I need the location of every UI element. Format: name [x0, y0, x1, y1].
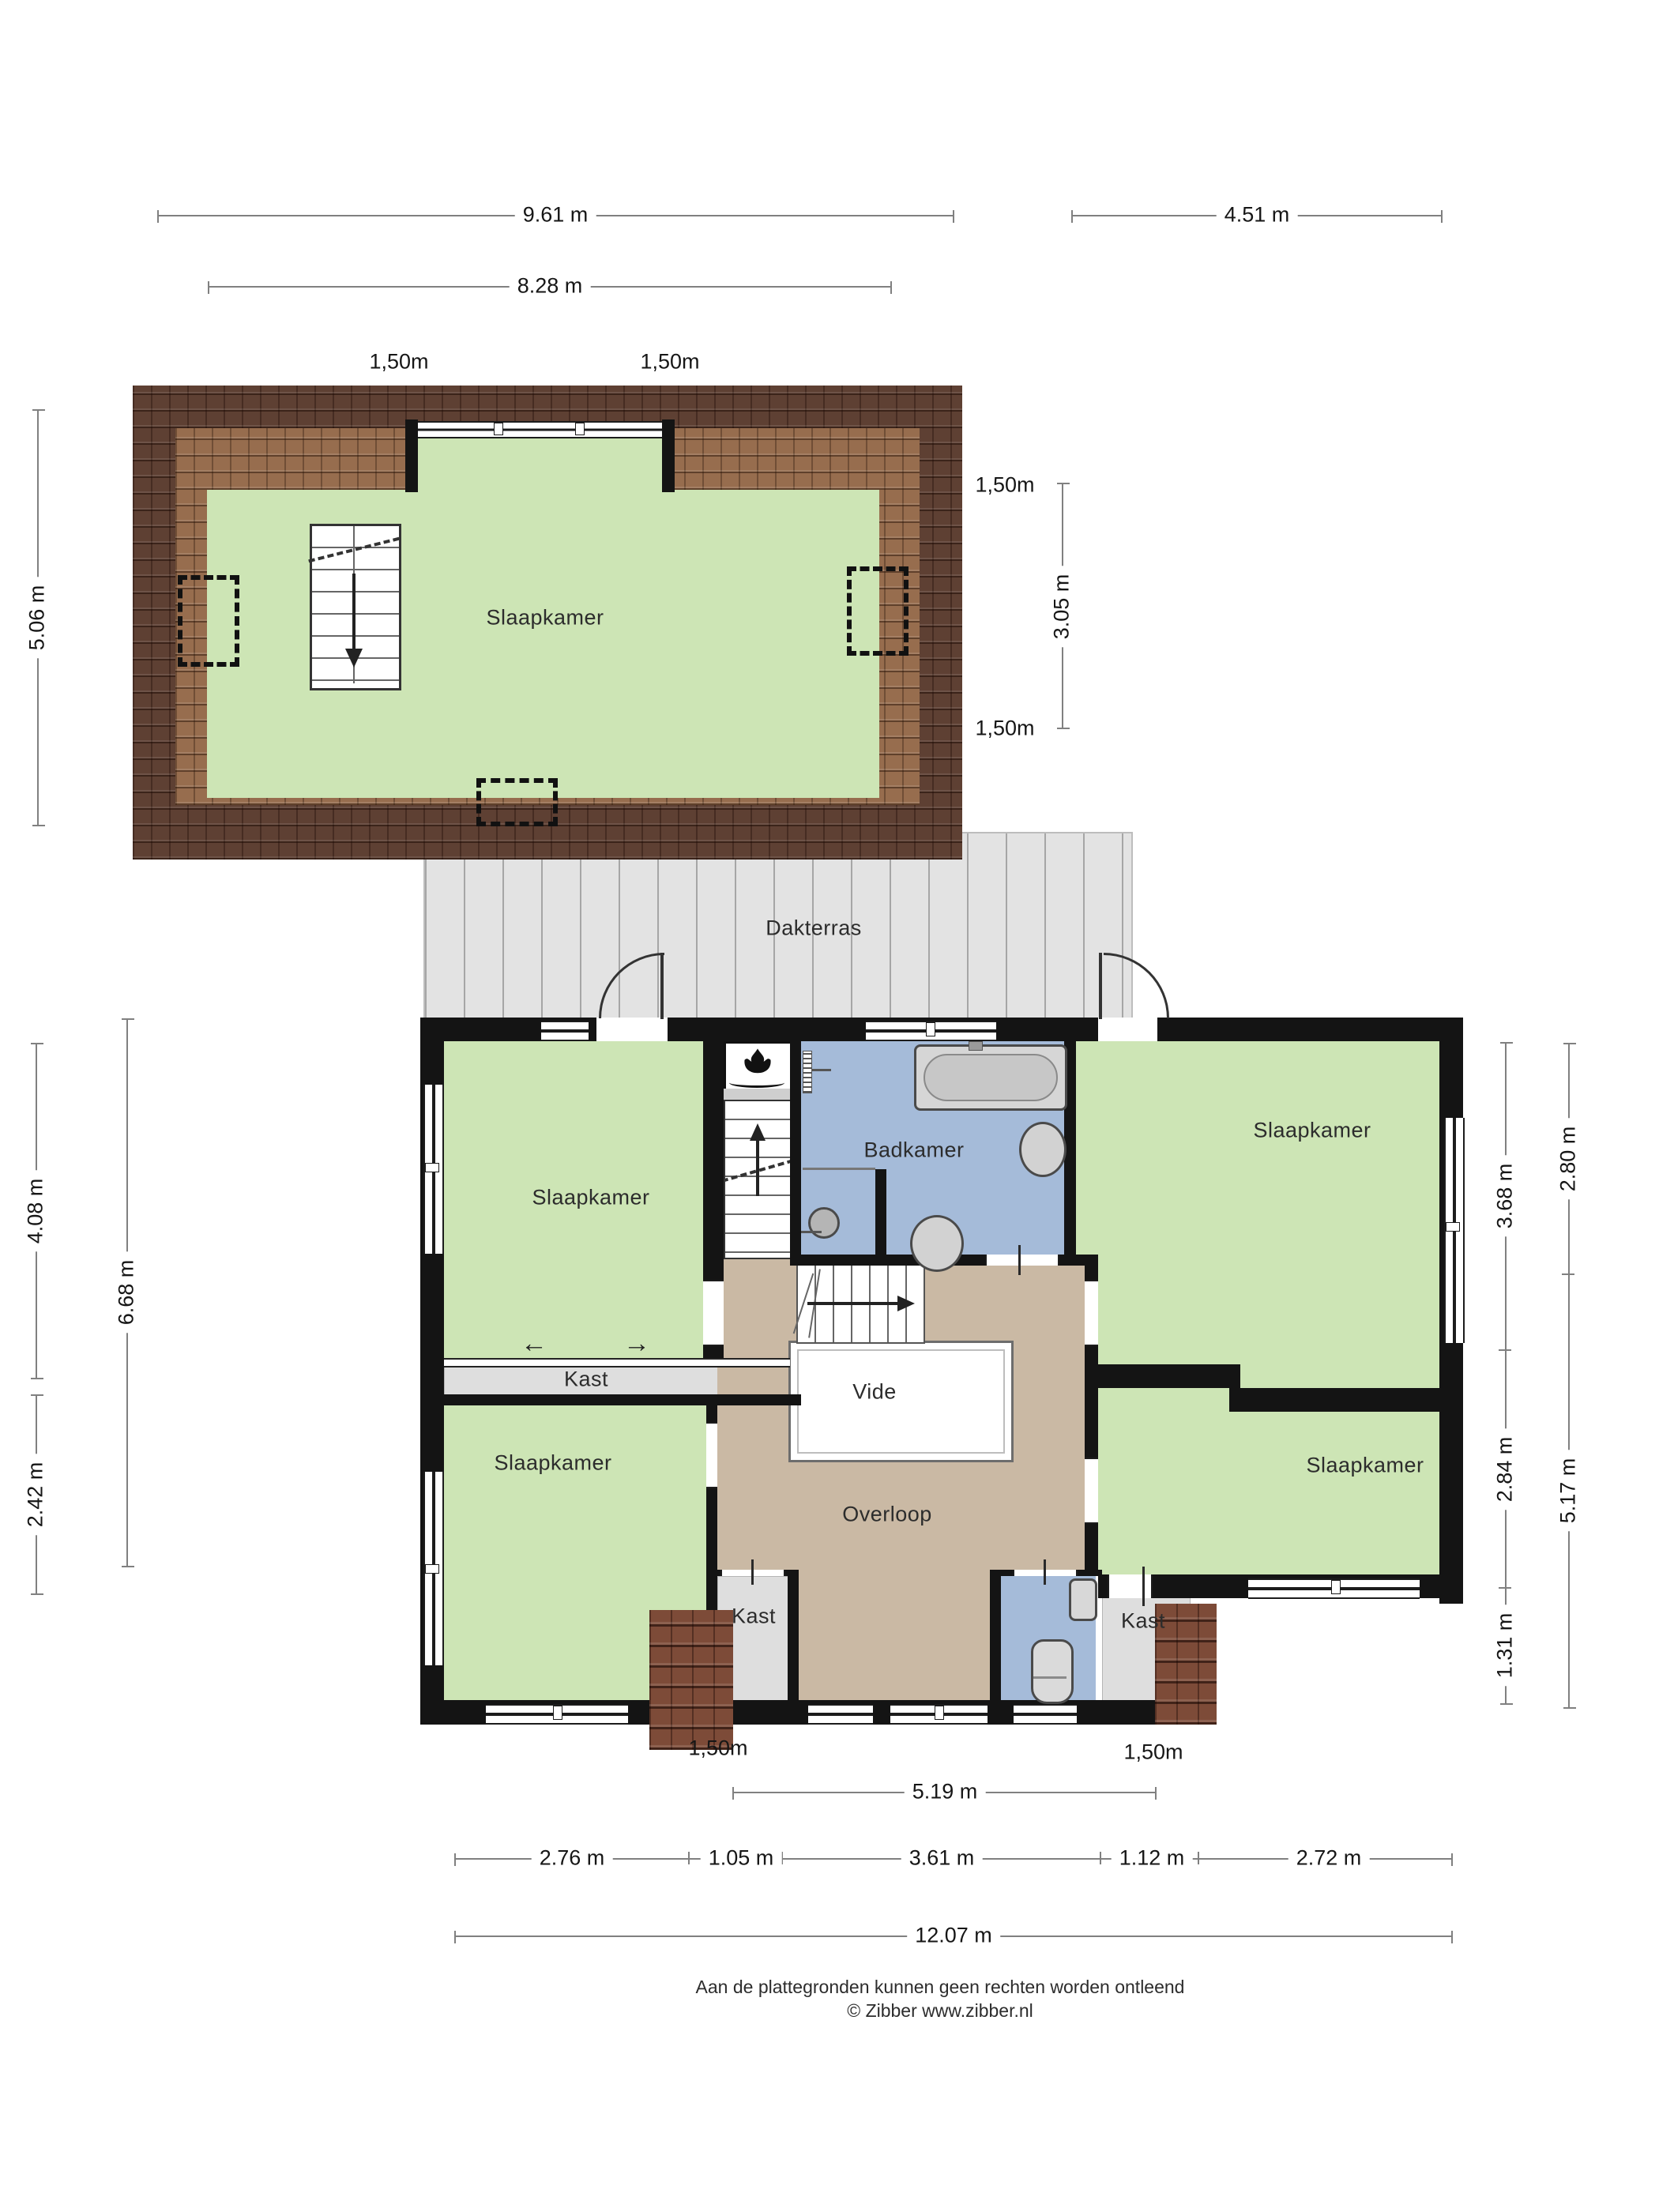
flame-icon	[740, 1047, 775, 1078]
dim-label: 1.31 m	[1492, 1605, 1519, 1687]
room-label-dakterras: Dakterras	[766, 916, 862, 941]
room-label-bedroom-nw: Slaapkamer	[532, 1186, 649, 1210]
wall-bedrooms-right-divider-a	[1098, 1364, 1240, 1388]
attic-staircase	[310, 524, 401, 690]
dim-label: 6.68 m	[113, 1252, 141, 1334]
dim-label: 2.80 m	[1555, 1119, 1582, 1200]
window-bedroom-nw-top	[541, 1021, 589, 1041]
roof-opening-right	[847, 566, 908, 656]
room-label-overloop: Overloop	[842, 1503, 932, 1527]
chimney-base	[724, 1089, 790, 1100]
vide-opening	[788, 1341, 1014, 1462]
attic-bedroom-floor	[207, 490, 879, 798]
room-label-kast-hall: Kast	[564, 1367, 608, 1392]
bathtub	[914, 1044, 1067, 1111]
sink	[1019, 1122, 1066, 1177]
dim-label: 4.08 m	[22, 1171, 50, 1252]
floor-plan-canvas: Dakterras Slaapkamer	[0, 0, 1659, 2212]
toilet	[1031, 1639, 1074, 1704]
door-bedroom-sw	[706, 1422, 717, 1488]
overloop-floor-lower	[788, 1570, 1001, 1700]
room-label-bedroom-ne: Slaapkamer	[1253, 1119, 1371, 1143]
sink-pedestal	[910, 1215, 964, 1272]
window-overloop-bottom-1	[808, 1704, 873, 1725]
wall-toilet-left	[990, 1570, 1001, 1700]
bedroom-se-floor	[1098, 1388, 1439, 1574]
slide-arrow-right: →	[623, 1329, 650, 1360]
dim-label: 9.61 m	[515, 201, 596, 229]
copyright-text: © Zibber www.zibber.nl	[847, 2000, 1033, 2022]
dim-label-headroom: 1,50m	[680, 1735, 755, 1762]
wall-stairs-bath	[790, 1041, 801, 1266]
room-label-kast-se: Kast	[1121, 1609, 1165, 1634]
door-swing-arc	[1104, 953, 1169, 1018]
dormer-window-mullion	[575, 423, 585, 435]
stair-direction-arrow	[352, 574, 355, 653]
radiator	[803, 1051, 812, 1093]
door-kast-se	[1108, 1574, 1153, 1598]
dim-label: 1.12 m	[1112, 1845, 1193, 1872]
slide-arrow-left: ←	[521, 1329, 547, 1360]
roof-piece-sw	[649, 1610, 733, 1750]
dim-label: 3.68 m	[1492, 1156, 1519, 1237]
dim-label: 8.28 m	[510, 273, 591, 300]
dormer-post-right	[662, 419, 675, 492]
main-staircase	[796, 1264, 925, 1344]
dim-label: 5.06 m	[24, 577, 51, 659]
bedroom-ne-floor	[1076, 1041, 1439, 1388]
attic-access-staircase	[724, 1100, 793, 1259]
dormer-window-mullion	[494, 423, 503, 435]
door-leaf	[1099, 953, 1102, 1019]
dim-label: 3.61 m	[901, 1845, 983, 1872]
room-label-bedroom-se: Slaapkamer	[1306, 1454, 1424, 1478]
dim-label: 5.19 m	[905, 1778, 986, 1806]
stair-direction-arrow	[756, 1136, 759, 1196]
wall-kast-hall-bottom	[444, 1394, 801, 1405]
disclaimer-text: Aan de plattegronden kunnen geen rechten…	[696, 1977, 1185, 1998]
dim-label-headroom: 1,50m	[967, 715, 1042, 743]
dim-label-headroom: 1,50m	[967, 472, 1042, 499]
room-label-attic-bedroom: Slaapkamer	[486, 606, 604, 630]
dim-label: 4.51 m	[1217, 201, 1298, 229]
kast-sliding-track	[444, 1358, 790, 1367]
shower-head	[808, 1207, 840, 1239]
dim-label-headroom: 1,50m	[632, 348, 707, 376]
dim-label: 3.05 m	[1048, 566, 1076, 648]
toilet-sink	[1069, 1578, 1097, 1621]
door-bedroom-se	[1085, 1458, 1098, 1524]
dormer-post-left	[405, 419, 418, 492]
room-label-bedroom-sw: Slaapkamer	[494, 1451, 611, 1476]
dim-label-headroom: 1,50m	[361, 348, 436, 376]
door-bedroom-nw	[703, 1280, 724, 1346]
room-label-vide: Vide	[852, 1380, 897, 1405]
stair-direction-arrow	[807, 1302, 901, 1305]
dim-label: 5.17 m	[1555, 1450, 1582, 1532]
window-toilet-bottom	[1014, 1704, 1077, 1725]
roof-opening-left	[178, 575, 239, 667]
door-badkamer	[985, 1255, 1059, 1266]
dormer-window	[416, 421, 664, 438]
roof-opening-bottom	[476, 778, 558, 826]
room-label-badkamer: Badkamer	[863, 1138, 964, 1163]
dim-label: 12.07 m	[907, 1922, 1000, 1950]
dim-label-headroom: 1,50m	[1115, 1739, 1191, 1766]
room-label-kast-sw: Kast	[732, 1604, 776, 1629]
dim-label: 2.76 m	[532, 1845, 613, 1872]
door-opening-terrace-right	[1098, 1018, 1157, 1041]
dim-label: 2.72 m	[1288, 1845, 1370, 1872]
chimney-flue	[724, 1041, 795, 1092]
dim-label: 2.42 m	[22, 1454, 50, 1536]
dim-label: 2.84 m	[1492, 1429, 1519, 1510]
door-bedroom-ne	[1085, 1280, 1098, 1346]
door-opening-terrace-left	[596, 1018, 668, 1041]
wall-kast-sw-right	[788, 1570, 799, 1700]
wall-bedrooms-right-divider-b	[1229, 1388, 1439, 1412]
wall-shower-stub	[875, 1169, 886, 1266]
attic-dormer-floor	[416, 434, 664, 493]
shower-glass	[803, 1168, 875, 1170]
dim-label: 1.05 m	[701, 1845, 782, 1872]
